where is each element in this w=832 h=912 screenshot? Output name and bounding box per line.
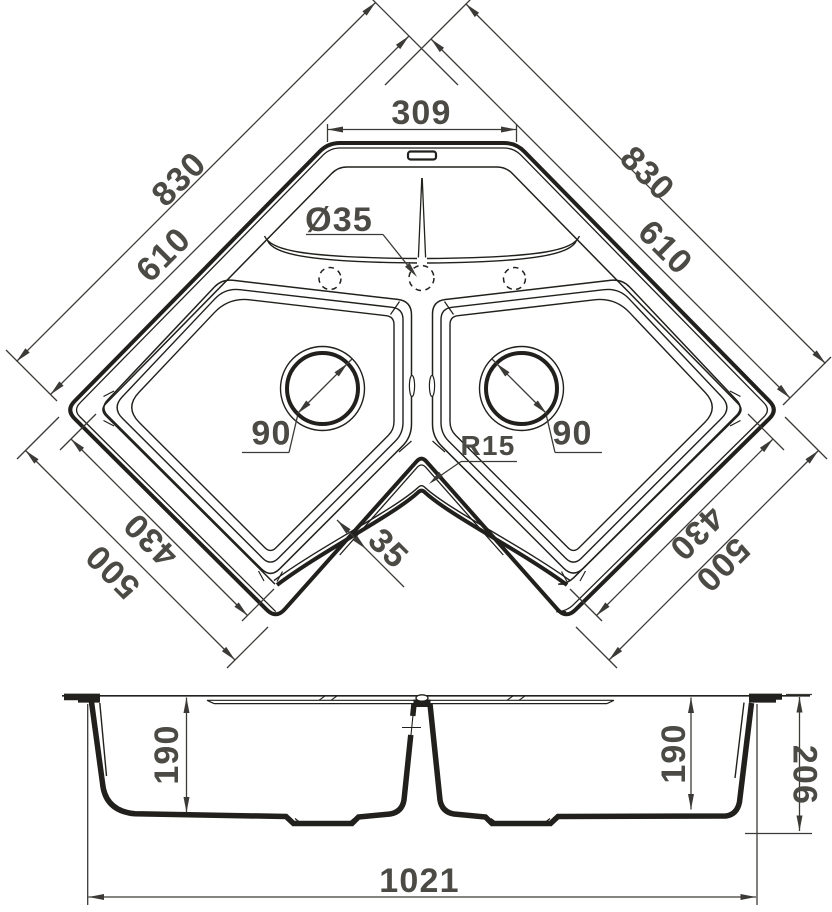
svg-text:190: 190 — [148, 724, 186, 784]
svg-text:309: 309 — [391, 94, 451, 132]
svg-text:206: 206 — [786, 745, 824, 805]
svg-text:1021: 1021 — [379, 862, 459, 900]
svg-text:R15: R15 — [461, 430, 516, 461]
svg-text:90: 90 — [251, 415, 291, 453]
svg-text:190: 190 — [655, 723, 693, 783]
svg-text:Ø35: Ø35 — [305, 201, 373, 239]
svg-text:90: 90 — [552, 415, 592, 453]
